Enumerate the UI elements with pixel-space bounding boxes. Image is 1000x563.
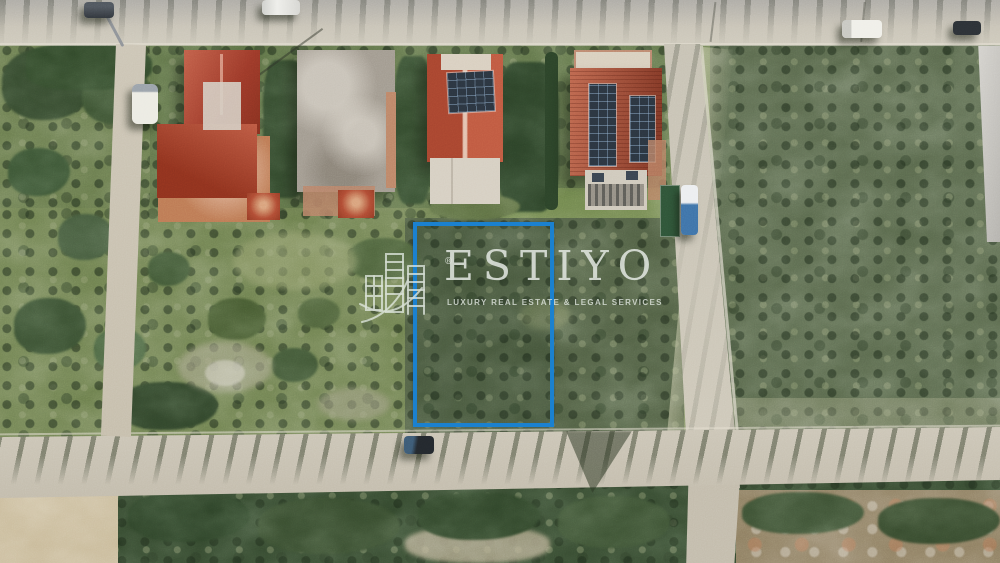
rocky-patch [318, 388, 390, 420]
house-a-terrace [203, 82, 241, 130]
hedge [545, 52, 558, 210]
brand-name: ESTIYO® [444, 244, 453, 289]
rock-cluster [205, 360, 245, 386]
estiyo-watermark: ESTIYO® LUXURY REAL ESTATE & LEGAL SERVI… [358, 244, 688, 328]
skylight [592, 173, 604, 182]
delivery-truck [681, 185, 698, 235]
parked-car [84, 2, 114, 18]
parked-car [953, 21, 981, 35]
green-shed [660, 185, 680, 237]
white-van [132, 84, 158, 124]
parked-car [262, 0, 300, 15]
roadside-wall [0, 43, 1000, 46]
parked-truck [842, 20, 882, 38]
pergola [588, 184, 644, 206]
house-c-walls [430, 158, 500, 204]
solar-panels [447, 71, 495, 113]
house-a-roof [157, 124, 257, 198]
garden-shed [338, 190, 374, 218]
garden-shed [247, 193, 280, 220]
aerial-photo: ESTIYO® LUXURY REAL ESTATE & LEGAL SERVI… [0, 0, 1000, 563]
buildings-logo-icon [358, 246, 436, 326]
dry-grass-patch [233, 232, 357, 290]
right-scrubland [710, 44, 1000, 438]
skylight [626, 171, 638, 180]
house-b-edge [386, 92, 396, 188]
house-c-terrace [441, 54, 491, 70]
house-b-flat-roof [297, 50, 395, 192]
solar-panels [589, 84, 616, 166]
side-road-lower [684, 478, 740, 563]
brand-tagline: LUXURY REAL ESTATE & LEGAL SERVICES [447, 298, 663, 307]
parked-car [404, 436, 434, 454]
